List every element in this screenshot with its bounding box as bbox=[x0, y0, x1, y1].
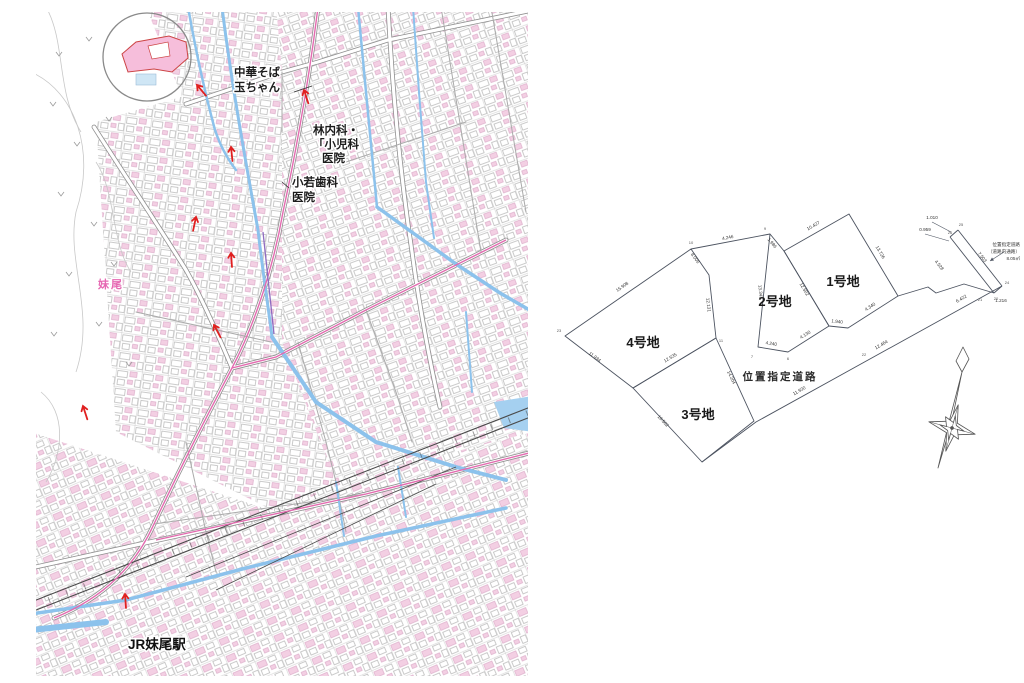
road-zigzag-edge bbox=[898, 284, 994, 296]
vertex-number: 22 bbox=[862, 352, 867, 357]
vertex-number: 11 bbox=[719, 338, 724, 343]
dimension-label: 12.535 bbox=[663, 352, 678, 364]
parcel-3-label: 3号地 bbox=[681, 407, 714, 422]
road-note-line3: 8.05㎡ bbox=[1006, 255, 1020, 261]
dimension-label: 1.940 bbox=[831, 318, 843, 324]
label-clinic-line3: 医院 bbox=[322, 151, 345, 165]
label-clinic-line1: 林内科・ bbox=[313, 123, 359, 137]
vertex-number: 25 bbox=[959, 222, 964, 227]
subdivision-diagram: 1号地 2号地 3号地 4号地 位置指定道路 位置指定道路 （道路内通路） 8.… bbox=[552, 200, 1022, 500]
compass-rose bbox=[923, 347, 982, 468]
parcel-3-outline bbox=[633, 338, 754, 462]
label-dental-line2: 医院 bbox=[292, 190, 315, 204]
dimension-label: 14.204 bbox=[726, 370, 737, 385]
parcel-4-outline bbox=[565, 249, 716, 388]
vertex-number: 24 bbox=[1005, 280, 1010, 285]
site-marker bbox=[103, 13, 191, 101]
subdivision-svg: 1号地 2号地 3号地 4号地 位置指定道路 位置指定道路 （道路内通路） 8.… bbox=[552, 200, 1022, 500]
dimension-label: 4.240 bbox=[765, 340, 778, 347]
city-map: 中華そば 玉ちゃん 林内科・ 「小児科 医院 小若歯科 医院 妹尾 JR妹尾駅 bbox=[36, 12, 528, 676]
road-strip bbox=[950, 230, 1002, 293]
label-station: JR妹尾駅 bbox=[128, 636, 186, 652]
vertex-number: 10 bbox=[689, 240, 694, 245]
dimension-label: 4.246 bbox=[722, 234, 735, 241]
dimension-label: 0.959 bbox=[919, 227, 931, 232]
label-district: 妹尾 bbox=[97, 277, 124, 291]
dimension-label: 12.131 bbox=[705, 298, 711, 313]
parcel-4-label: 4号地 bbox=[626, 335, 659, 350]
road-note-line1: 位置指定道路 bbox=[992, 241, 1020, 248]
vertex-number: 21 bbox=[978, 297, 983, 302]
parcel-1-label: 1号地 bbox=[826, 274, 859, 289]
dimension-label: 8.006 bbox=[690, 252, 701, 265]
label-clinic-line2: 「小児科 bbox=[313, 137, 359, 151]
dimension-label: 13.726 bbox=[875, 245, 887, 260]
vertex-number: 7 bbox=[751, 354, 754, 359]
screenshot-canvas: 中華そば 玉ちゃん 林内科・ 「小児科 医院 小若歯科 医院 妹尾 JR妹尾駅 bbox=[0, 0, 1024, 683]
city-map-svg: 中華そば 玉ちゃん 林内科・ 「小児科 医院 小若歯科 医院 妹尾 JR妹尾駅 bbox=[36, 12, 528, 676]
dimension-label: 11.934 bbox=[588, 351, 602, 364]
parcel-1-outline bbox=[784, 214, 898, 328]
vertex-number: 9 bbox=[764, 226, 767, 231]
label-ramen-line1: 中華そば bbox=[234, 65, 280, 79]
dimension-label: 15.908 bbox=[615, 280, 630, 292]
dimension-label: 1.010 bbox=[926, 215, 938, 220]
road-note-line2: （道路内通路） bbox=[988, 248, 1020, 255]
dimension-label: 10.427 bbox=[806, 220, 821, 232]
vertex-number: 26 bbox=[948, 230, 953, 235]
dimension-label: 12.464 bbox=[874, 339, 889, 351]
parcel-2-outline bbox=[758, 234, 829, 352]
dimension-label: 11.930 bbox=[792, 385, 807, 396]
red-arrow bbox=[80, 405, 90, 420]
dimension-label: 4.528 bbox=[934, 259, 945, 271]
compass-needle-tip bbox=[956, 347, 969, 372]
dimension-label: 6.422 bbox=[955, 293, 968, 303]
vertex-number: 20 bbox=[994, 296, 999, 301]
vertex-number: 23 bbox=[557, 328, 562, 333]
label-dental-line1: 小若歯科 bbox=[291, 175, 338, 189]
label-ramen-line2: 玉ちゃん bbox=[234, 81, 280, 94]
road-label: 位置指定道路 bbox=[743, 370, 818, 383]
dimension-labels: 10.42713.7261.98613.34312.5024.2404.1301… bbox=[588, 215, 1007, 428]
vertex-number: 6 bbox=[787, 356, 790, 361]
dimension-label: 12.502 bbox=[799, 282, 811, 297]
note-arrowhead bbox=[990, 258, 994, 262]
